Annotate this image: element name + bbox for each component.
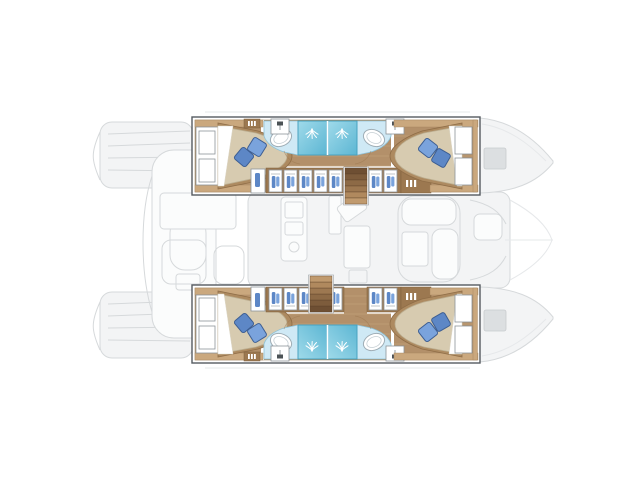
galley	[281, 197, 307, 261]
bow-hatch	[484, 310, 506, 331]
port-hull	[192, 117, 480, 195]
stairs-starboard	[309, 275, 334, 313]
bow-hatch	[484, 148, 506, 169]
chart-desk	[344, 226, 370, 268]
starboard-hull	[192, 285, 480, 363]
cockpit-table	[160, 193, 236, 229]
stairs-port	[344, 167, 369, 205]
bow-port	[480, 118, 553, 193]
saloon-partition	[329, 196, 341, 234]
bow-starboard	[480, 287, 553, 362]
saloon	[248, 192, 510, 288]
floorplan-image	[0, 0, 640, 479]
trampoline	[505, 200, 553, 280]
saloon-sofa	[398, 196, 460, 282]
catamaran-deck-plan	[0, 0, 640, 479]
